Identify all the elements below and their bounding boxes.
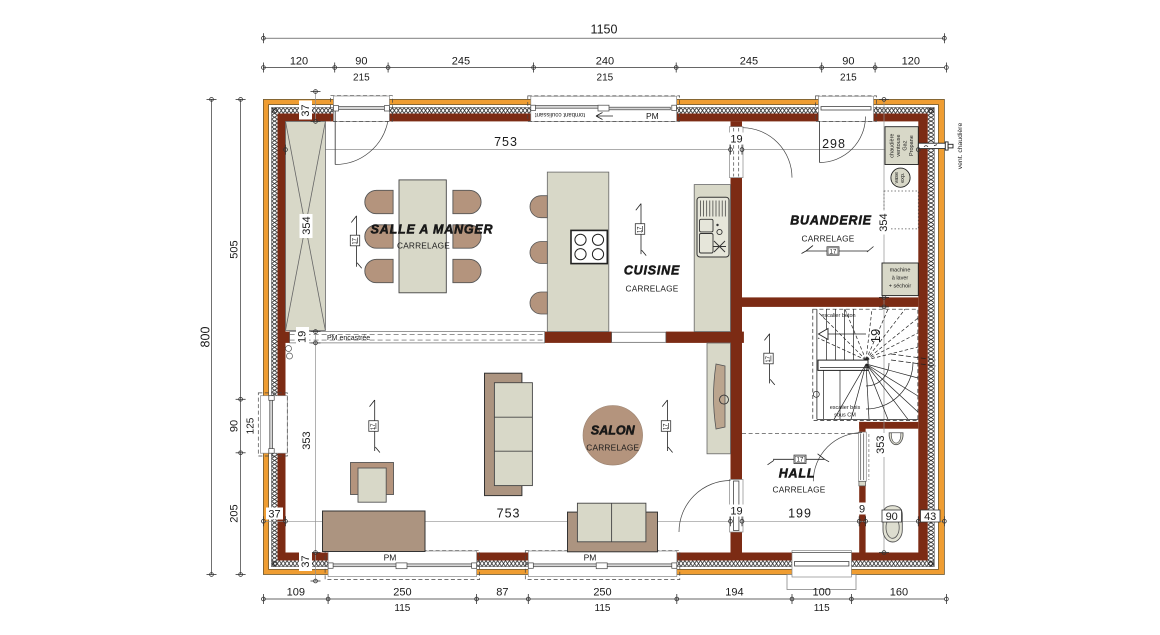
svg-text:exp.: exp. [900,172,906,183]
svg-text:CARRELAGE: CARRELAGE [626,284,679,294]
svg-text:90: 90 [842,56,854,68]
svg-text:PM: PM [646,111,659,121]
svg-text:19: 19 [730,506,742,518]
svg-text:1150: 1150 [591,23,618,37]
svg-text:120: 120 [902,56,920,68]
svg-text:100: 100 [813,587,831,599]
svg-text:17: 17 [797,458,804,464]
svg-text:Gaz: Gaz [903,140,909,150]
svg-text:354: 354 [878,213,890,231]
svg-text:109: 109 [287,587,305,599]
svg-text:sous CM: sous CM [834,413,856,419]
svg-text:+ séchoir: + séchoir [889,284,912,290]
svg-text:245: 245 [740,56,758,68]
svg-text:194: 194 [725,587,743,599]
svg-text:PM: PM [384,553,397,563]
svg-text:37: 37 [300,555,312,567]
svg-text:240: 240 [596,56,614,68]
svg-text:115: 115 [814,603,830,614]
svg-text:chaudière: chaudière [890,134,896,158]
svg-text:215: 215 [840,73,857,84]
svg-text:43: 43 [924,511,936,523]
svg-text:800: 800 [199,327,213,348]
svg-text:215: 215 [353,73,370,84]
svg-text:160: 160 [890,587,908,599]
svg-text:19: 19 [868,329,883,343]
svg-text:vent. chaudière: vent. chaudière [957,123,964,170]
svg-text:353: 353 [875,436,887,454]
svg-text:SALLE A MANGER: SALLE A MANGER [371,223,494,237]
svg-text:19: 19 [297,331,309,343]
svg-text:CARRELAGE: CARRELAGE [397,241,450,251]
svg-text:120: 120 [290,56,308,68]
svg-text:à laver: à laver [892,276,909,282]
svg-text:215: 215 [597,73,614,84]
svg-text:353: 353 [301,431,313,449]
svg-text:298: 298 [822,137,846,151]
svg-text:115: 115 [394,603,410,614]
svg-text:CARRELAGE: CARRELAGE [773,485,826,495]
svg-text:9: 9 [859,504,865,516]
svg-text:90: 90 [229,420,241,432]
svg-text:505: 505 [229,240,241,258]
svg-text:ventouse: ventouse [896,134,902,156]
svg-text:BUANDERIE: BUANDERIE [790,214,872,228]
svg-text:tombant coulissant: tombant coulissant [535,111,585,117]
svg-text:CARRELAGE: CARRELAGE [586,443,639,453]
svg-text:205: 205 [228,504,240,522]
svg-text:250: 250 [393,587,411,599]
svg-text:199: 199 [788,507,812,521]
svg-text:Propane: Propane [909,135,915,156]
svg-text:90: 90 [355,56,367,68]
svg-text:90: 90 [886,511,898,523]
svg-text:machine: machine [890,268,911,274]
svg-text:250: 250 [593,587,611,599]
svg-text:escalier bois: escalier bois [830,405,861,411]
svg-text:CARRELAGE: CARRELAGE [802,234,855,244]
svg-text:19: 19 [730,134,742,146]
svg-text:125: 125 [246,417,257,434]
svg-text:245: 245 [452,56,470,68]
svg-text:87: 87 [496,587,508,599]
svg-text:SALON: SALON [591,424,636,438]
svg-text:354: 354 [301,216,313,234]
svg-text:escalier béton: escalier béton [821,313,855,319]
svg-text:37: 37 [300,104,312,116]
svg-text:CUISINE: CUISINE [624,264,680,278]
svg-text:115: 115 [595,603,611,614]
svg-text:PM encastrée: PM encastrée [327,335,370,342]
svg-text:17: 17 [830,249,837,255]
svg-text:HALL: HALL [779,467,816,481]
svg-text:753: 753 [494,135,518,149]
svg-text:753: 753 [497,507,521,521]
svg-text:37: 37 [268,509,280,521]
svg-text:PM: PM [584,553,597,563]
